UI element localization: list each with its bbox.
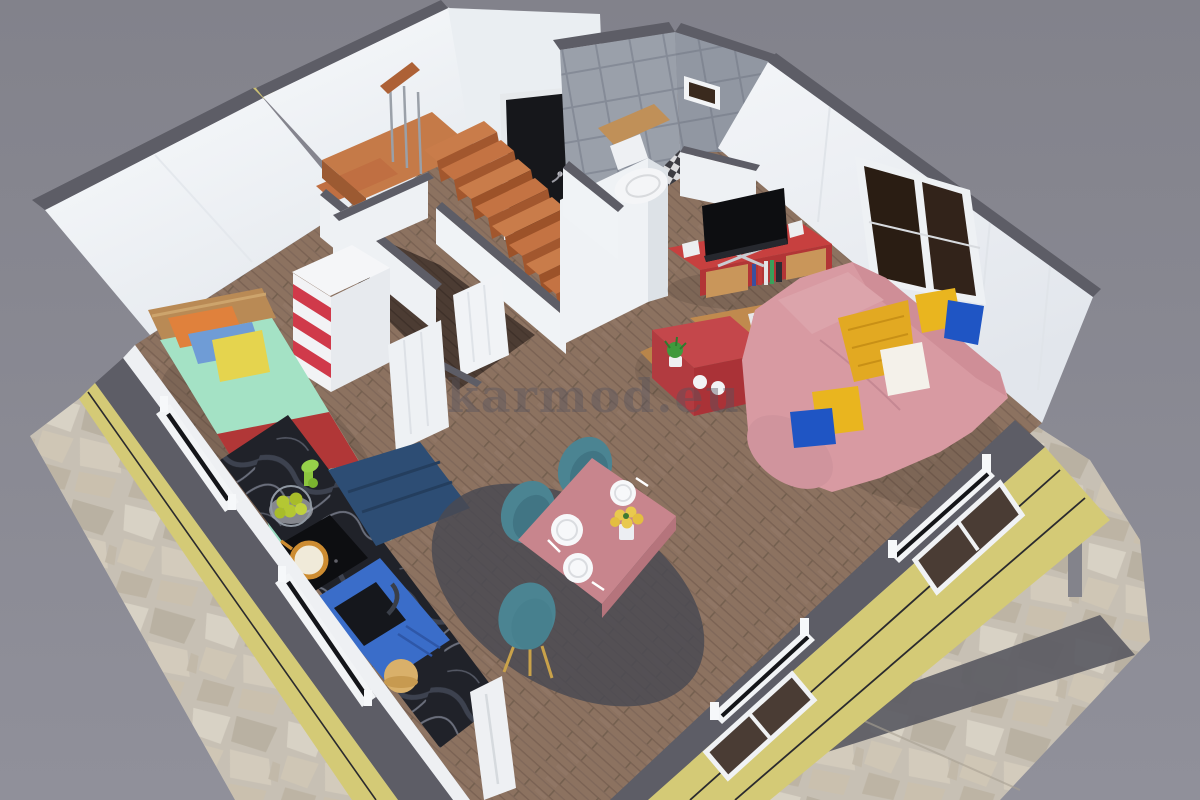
shelf-book [770,260,774,284]
pillow-blue [944,300,984,345]
shelf-device [776,262,782,282]
watermark-text: karmod.eu [447,369,741,423]
floorplan-render-frame: karmod.eu [0,0,1200,800]
shelf-book [752,264,756,286]
house-3d-floorplan: karmod.eu [0,0,1200,800]
shelf-book [764,261,768,285]
pillow-blue-2 [790,408,836,448]
pillow-white [880,342,930,396]
